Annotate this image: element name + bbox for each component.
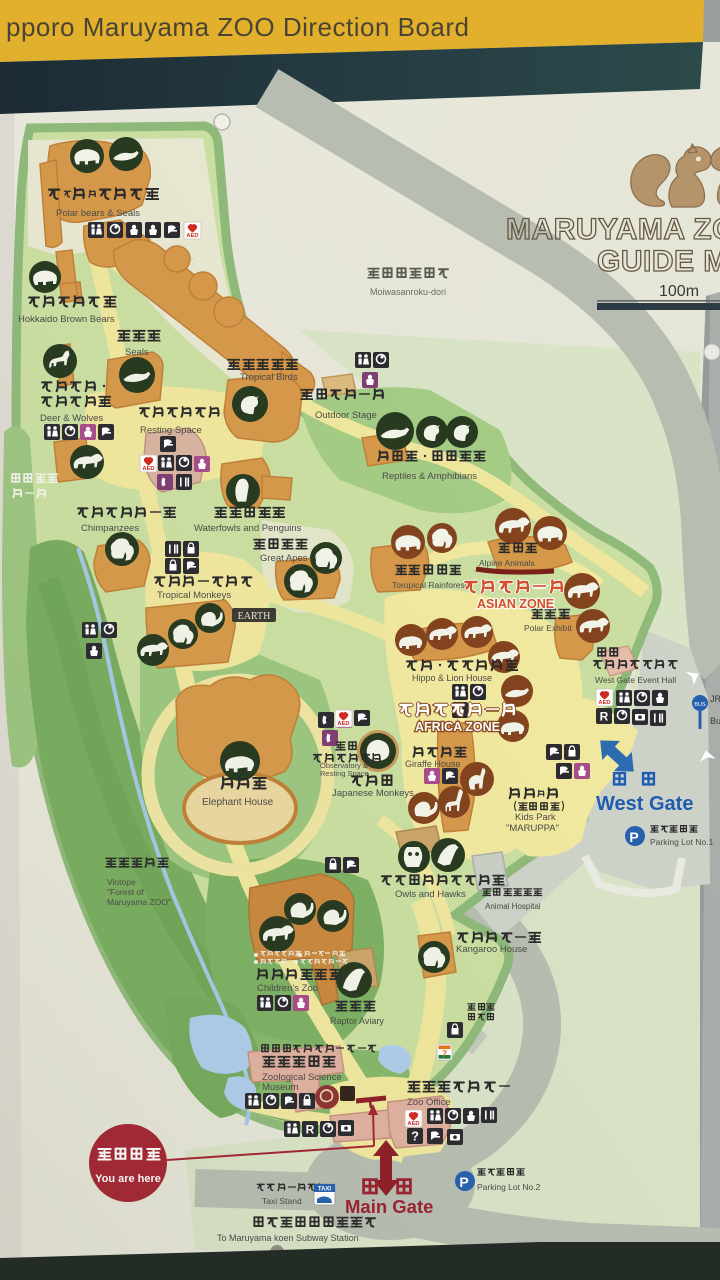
- svg-text:"Forest of: "Forest of: [107, 887, 144, 897]
- svg-text:Children's Zoo: Children's Zoo: [257, 983, 318, 994]
- svg-text:"MARUPPA": "MARUPPA": [506, 823, 559, 834]
- svg-text:P: P: [629, 829, 638, 845]
- svg-text:EARTH: EARTH: [238, 611, 271, 622]
- svg-text:Tropical Monkeys: Tropical Monkeys: [157, 590, 231, 601]
- svg-text:Seals: Seals: [125, 347, 149, 358]
- svg-text:Resting Space: Resting Space: [140, 425, 202, 436]
- svg-text:Tropical Birds: Tropical Birds: [240, 372, 298, 383]
- svg-text:Kangaroo House: Kangaroo House: [456, 944, 527, 955]
- svg-text:ASIAN ZONE: ASIAN ZONE: [477, 597, 554, 611]
- svg-text:West Gate: West Gate: [596, 793, 693, 815]
- svg-text:AED: AED: [407, 1121, 419, 1127]
- svg-text:Kids Park: Kids Park: [515, 812, 556, 823]
- svg-text:P: P: [459, 1174, 468, 1190]
- svg-text:Parking Lot No.2: Parking Lot No.2: [477, 1182, 541, 1192]
- svg-text:Taxi Stand: Taxi Stand: [262, 1196, 302, 1206]
- svg-text:?: ?: [411, 1129, 419, 1144]
- svg-text:Alpine Animals: Alpine Animals: [479, 558, 535, 568]
- svg-text:R: R: [600, 710, 609, 724]
- svg-text:TAXI: TAXI: [318, 1187, 332, 1193]
- svg-text:AED: AED: [186, 233, 198, 239]
- svg-text:AED: AED: [337, 721, 349, 727]
- svg-text:Owls and Hawks: Owls and Hawks: [395, 889, 466, 900]
- svg-text:Deer & Wolves: Deer & Wolves: [40, 413, 103, 424]
- svg-text:Reptiles & Amphibians: Reptiles & Amphibians: [382, 471, 477, 482]
- svg-text:MARUYAMA ZOO: MARUYAMA ZOO: [506, 213, 720, 246]
- svg-text:R: R: [306, 1123, 315, 1137]
- svg-text:Japanese Monkeys: Japanese Monkeys: [332, 788, 414, 799]
- svg-text:Toropical Rainforest: Toropical Rainforest: [392, 580, 468, 590]
- svg-text:Elephant House: Elephant House: [202, 797, 274, 808]
- svg-text:You are here: You are here: [95, 1173, 161, 1185]
- svg-text:Maruyama ZOO": Maruyama ZOO": [107, 897, 171, 907]
- svg-text:Viotope: Viotope: [107, 877, 136, 887]
- svg-text:AED: AED: [598, 700, 610, 706]
- svg-text:Hokkaido Brown Bears: Hokkaido Brown Bears: [18, 314, 115, 325]
- svg-text:Hippo & Lion House: Hippo & Lion House: [412, 673, 492, 683]
- svg-text:Museum: Museum: [262, 1082, 299, 1093]
- svg-text:Polar bears & Seals: Polar bears & Seals: [56, 208, 140, 219]
- svg-text:pporo Maruyama ZOO Direction B: pporo Maruyama ZOO Direction Board: [6, 12, 470, 42]
- svg-text:Bu: Bu: [710, 716, 720, 726]
- svg-text:Moiwasanroku-dori: Moiwasanroku-dori: [370, 287, 446, 297]
- svg-text:Main Gate: Main Gate: [345, 1196, 433, 1217]
- svg-text:Outdoor Stage: Outdoor Stage: [315, 410, 377, 421]
- svg-text:Great Apes: Great Apes: [260, 553, 308, 564]
- svg-text:Waterfowls and Penguins: Waterfowls and Penguins: [194, 523, 302, 534]
- svg-text:To Maruyama koen Subway Statio: To Maruyama koen Subway Station: [217, 1233, 359, 1243]
- svg-text:Parking Lot No.1: Parking Lot No.1: [650, 837, 714, 847]
- svg-text:Zoo Office: Zoo Office: [407, 1097, 451, 1108]
- svg-text:West Gate Event Hall: West Gate Event Hall: [595, 675, 676, 685]
- svg-text:GUIDE MAP: GUIDE MAP: [597, 245, 720, 278]
- svg-text:Polar Exhibit: Polar Exhibit: [524, 623, 572, 633]
- svg-text:Animal Hospital: Animal Hospital: [485, 902, 541, 911]
- svg-text:JR: JR: [710, 694, 720, 704]
- svg-text:7: 7: [442, 1049, 447, 1059]
- svg-text:BUS: BUS: [694, 702, 706, 708]
- svg-text:Giraffe House: Giraffe House: [405, 759, 460, 769]
- svg-text:Chimpanzees: Chimpanzees: [81, 523, 139, 534]
- svg-text:100m: 100m: [659, 283, 699, 300]
- svg-text:AFRICA ZONE: AFRICA ZONE: [415, 720, 500, 734]
- svg-text:AED: AED: [142, 466, 154, 472]
- svg-text:Raptor Aviary: Raptor Aviary: [330, 1016, 384, 1026]
